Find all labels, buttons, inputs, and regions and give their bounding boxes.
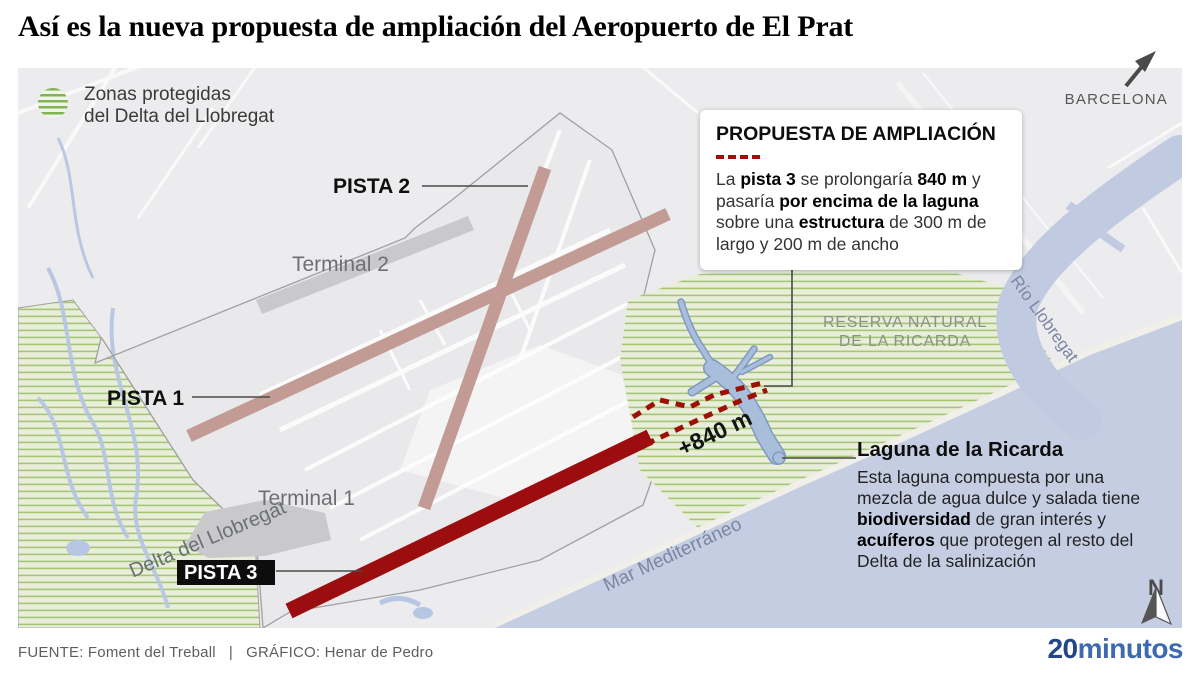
logo-20: 20 [1047, 633, 1077, 664]
legend-line2: del Delta del Llobregat [84, 106, 274, 128]
laguna-title: Laguna de la Ricarda [857, 438, 1153, 462]
logo-minutos: minutos [1078, 633, 1183, 664]
reserva-label-line2: DE LA RICARDA [839, 333, 971, 350]
barcelona-label: BARCELONA [1065, 91, 1168, 108]
footer-separator [220, 644, 229, 661]
proposal-title: PROPUESTA DE AMPLIACIÓN [716, 123, 1006, 146]
legend-text: Zonas protegidas del Delta del Llobregat [84, 84, 274, 128]
legend: Zonas protegidas del Delta del Llobregat [38, 84, 274, 128]
pista1-label: PISTA 1 [107, 387, 184, 410]
page-title: Así es la nueva propuesta de ampliación … [18, 10, 1178, 44]
infographic: Así es la nueva propuesta de ampliación … [0, 0, 1200, 676]
terminal2-label: Terminal 2 [292, 253, 389, 276]
proposal-dash-icon [716, 155, 762, 159]
source-text: FUENTE: Foment del Treball [18, 644, 216, 661]
20minutos-logo: 20minutos [1047, 633, 1183, 665]
pista2-label: PISTA 2 [333, 175, 410, 198]
laguna-annotation: Laguna de la Ricarda Esta laguna compues… [857, 438, 1153, 572]
footer-source: FUENTE: Foment del Treball | GRÁFICO: He… [18, 644, 433, 661]
footer-separator2 [233, 644, 242, 661]
laguna-body: Esta laguna compuesta por una mezcla de … [857, 467, 1153, 572]
reserva-label-line1: RESERVA NATURAL [823, 314, 987, 331]
northeast-arrow-icon [1118, 48, 1162, 90]
credit-text: GRÁFICO: Henar de Pedro [246, 644, 433, 661]
proposal-box: PROPUESTA DE AMPLIACIÓN La pista 3 se pr… [700, 110, 1022, 270]
legend-line1: Zonas protegidas [84, 84, 274, 106]
pista3-label: PISTA 3 [184, 562, 257, 584]
protected-zone-hatch-icon [38, 88, 68, 118]
proposal-body: La pista 3 se prolongaría 840 m y pasarí… [716, 169, 1006, 256]
